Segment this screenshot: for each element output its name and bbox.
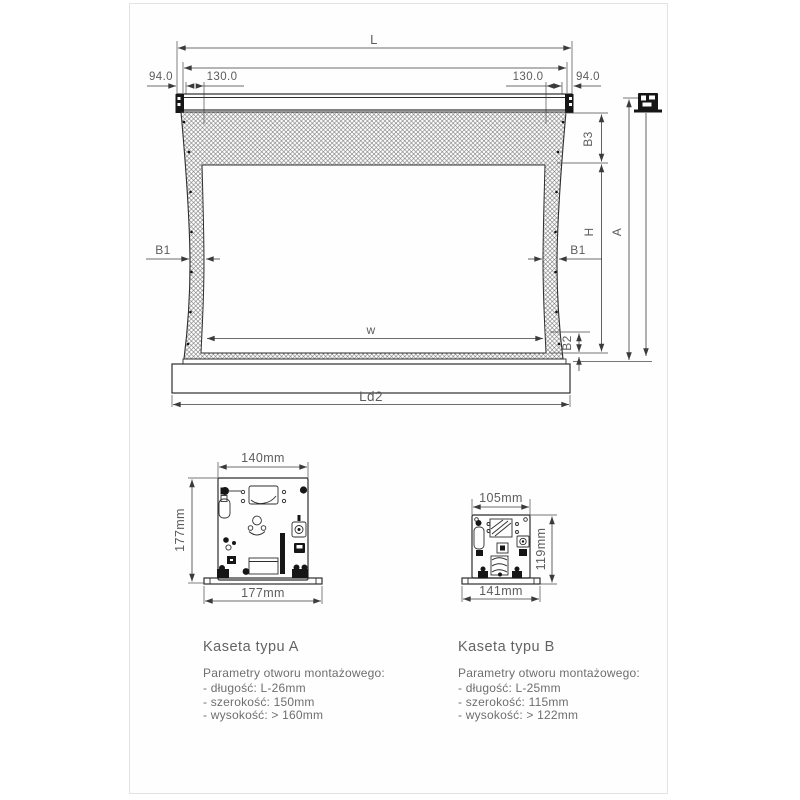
cassette-a-params-heading: Parametry otworu montażowego: — [203, 667, 433, 681]
cassette-b-param-height: - wysokość: > 122mm — [458, 709, 688, 723]
dim-label-B1-right: B1 — [570, 243, 585, 257]
cassette-a-description: Kaseta typu A Parametry otworu montażowe… — [203, 639, 433, 723]
bottom-bar — [172, 359, 570, 393]
screen-front-view: L 94.0 130.0 130.0 94.0 — [146, 32, 662, 407]
cassette-b-internals — [474, 518, 529, 578]
cassette-a-internals — [217, 486, 308, 578]
cassette-a-top-width-label: 140mm — [241, 451, 285, 465]
cassette-b-drawing: 105mm 119mm 141mm — [462, 491, 557, 602]
cassette-b-param-length: - długość: L-25mm — [458, 682, 688, 696]
dim-label-130-right: 130.0 — [513, 71, 544, 83]
dim-label-130-left: 130.0 — [207, 71, 238, 83]
dim-label-94-right: 94.0 — [576, 71, 600, 83]
cassette-b-params-heading: Parametry otworu montażowego: — [458, 667, 688, 681]
cassette-a-param-width: - szerokość: 150mm — [203, 696, 433, 710]
cassette-a-param-height: - wysokość: > 160mm — [203, 709, 433, 723]
dim-label-H: H — [582, 227, 596, 236]
cassette-b-height-label: 119mm — [534, 528, 548, 571]
dim-label-A: A — [610, 228, 624, 236]
cassette-b-top-width-label: 105mm — [479, 491, 523, 505]
cassette-b-param-width: - szerokość: 115mm — [458, 696, 688, 710]
cassette-b-description: Kaseta typu B Parametry otworu montażowe… — [458, 639, 688, 723]
cassette-b-title: Kaseta typu B — [458, 639, 688, 655]
screen-fabric — [181, 112, 566, 359]
dim-label-w: w — [365, 323, 375, 337]
cassette-side-profile-icon — [634, 93, 662, 113]
dim-label-94-left: 94.0 — [149, 71, 173, 83]
cassette-a-param-length: - długość: L-26mm — [203, 682, 433, 696]
cassette-a-base-width-label: 177mm — [241, 586, 285, 600]
screenshot-stage: L 94.0 130.0 130.0 94.0 — [0, 0, 800, 800]
screen-casing — [176, 94, 574, 113]
dim-label-L: L — [370, 32, 378, 47]
dim-label-Ld2: Ld2 — [359, 389, 383, 404]
cassette-a-height-label: 177mm — [173, 508, 187, 552]
dim-label-B2: B2 — [560, 335, 574, 350]
dim-label-B3: B3 — [581, 131, 595, 146]
cassette-a-drawing: 140mm 177mm 177mm — [173, 451, 322, 604]
dim-label-B1-left: B1 — [155, 243, 170, 257]
cassette-b-base-width-label: 141mm — [479, 584, 523, 598]
vertical-dimensions: B3 H A B2 — [549, 98, 652, 371]
cassette-a-title: Kaseta typu A — [203, 639, 433, 655]
